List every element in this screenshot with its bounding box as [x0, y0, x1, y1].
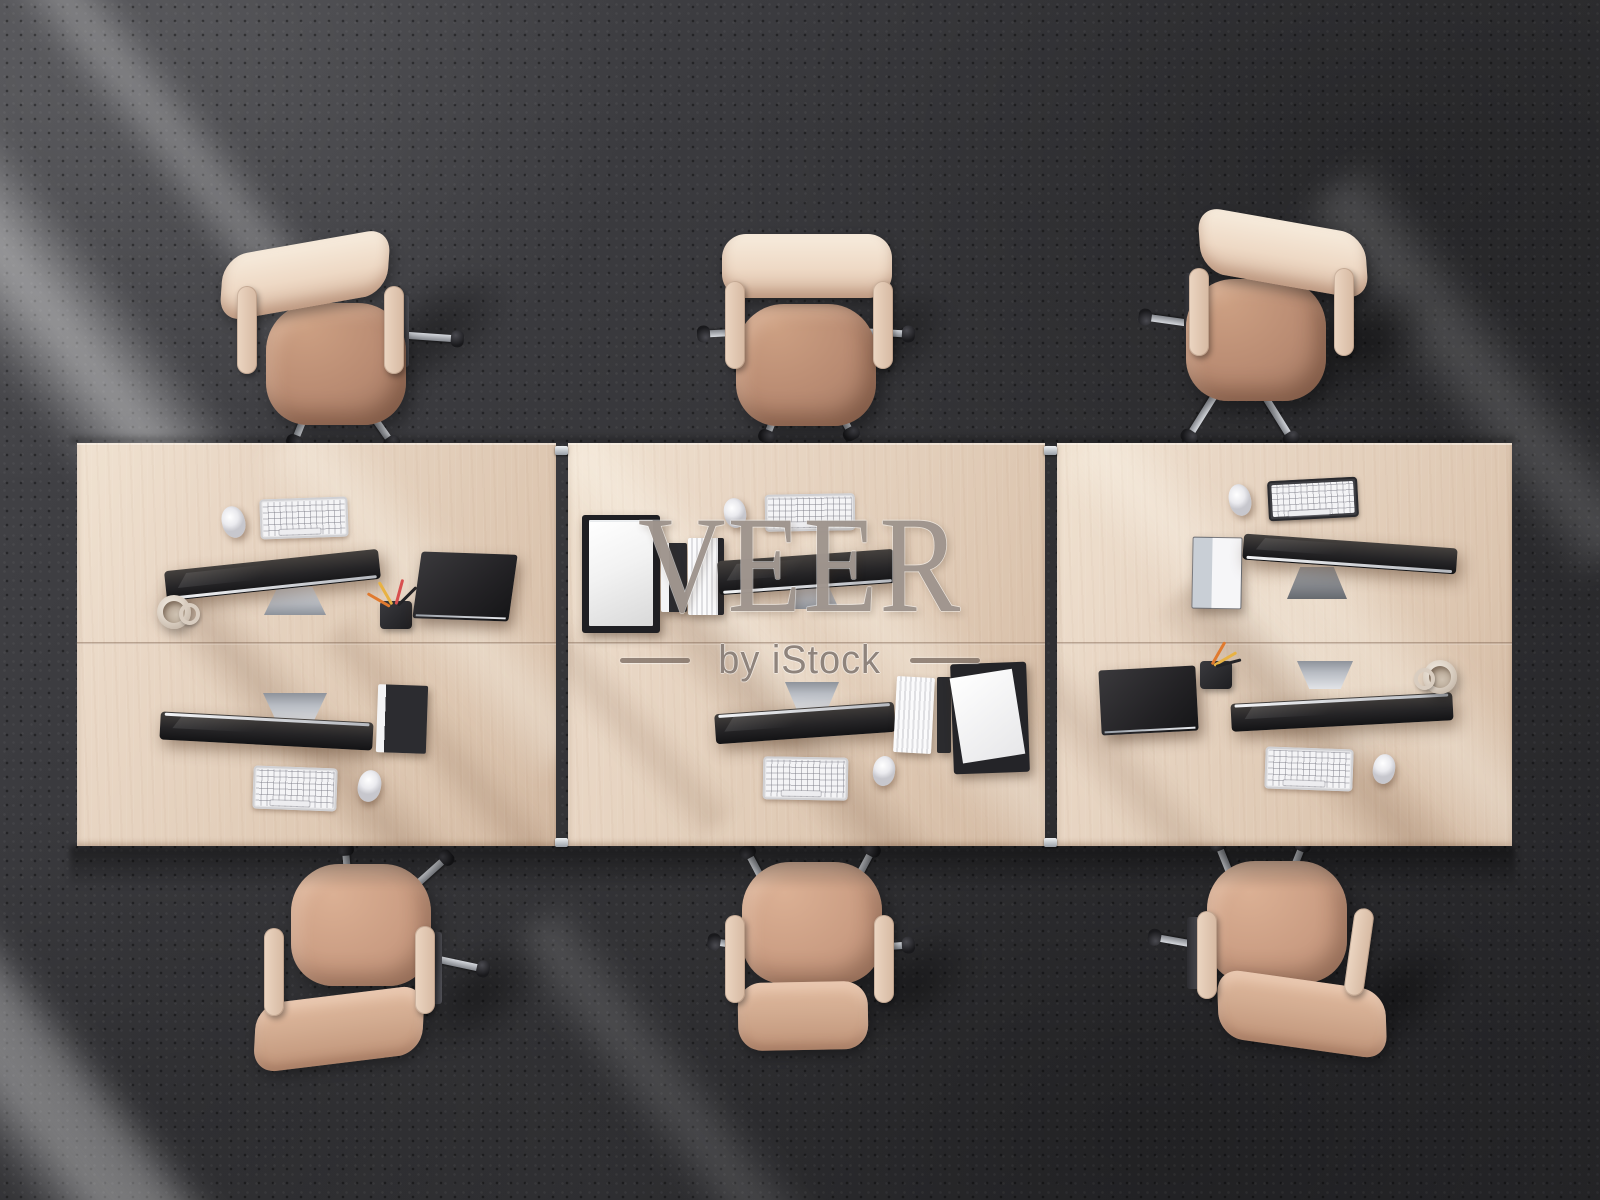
paper-stack: [589, 522, 653, 626]
chair-armrest: [725, 915, 745, 1003]
storage-box: [1191, 537, 1242, 610]
keyboard: [252, 766, 337, 812]
standing-book-dark: [661, 543, 687, 612]
paper-stack: [950, 669, 1026, 764]
desk-connector-clip: [1044, 446, 1057, 455]
pencil-holder: [380, 601, 412, 629]
closed-laptop: [412, 551, 517, 621]
keyboard: [763, 756, 849, 800]
chair-armrest: [873, 281, 893, 369]
document-organizer: [582, 515, 660, 633]
monitor-top: [164, 549, 381, 601]
paper-tray: [950, 662, 1030, 775]
standing-book: [376, 684, 428, 754]
keyboard: [1264, 746, 1353, 791]
computer-mouse: [722, 496, 749, 529]
desk-connector-clip: [555, 838, 568, 847]
desk-seam: [77, 642, 556, 645]
monitor-stand: [264, 587, 326, 615]
coffee-mug: [157, 595, 191, 629]
chair-armrest: [1343, 907, 1375, 997]
desk-right: [1057, 443, 1512, 846]
desk-connector-clip: [1044, 838, 1057, 847]
keyboard: [259, 496, 348, 539]
office-top-view-photo: VEER by iStock: [0, 0, 1600, 1200]
keyboard: [1267, 477, 1359, 522]
chair-armrest: [264, 928, 284, 1016]
desk-shadow: [70, 434, 1515, 443]
chair-armrest: [1334, 268, 1354, 356]
chair-armrest: [1197, 911, 1217, 999]
desk-left: [77, 443, 556, 846]
desk-center: [568, 443, 1045, 846]
desk-shadow: [70, 846, 1515, 888]
chair-backrest: [737, 981, 868, 1051]
chair-armrest: [415, 926, 435, 1014]
chair-armrest: [1189, 268, 1209, 356]
desk-seam: [568, 642, 1045, 645]
standing-book-white: [893, 676, 935, 754]
chair-armrest: [725, 281, 745, 369]
keyboard: [765, 493, 856, 532]
chair-backrest: [722, 234, 892, 298]
standing-book-dark: [937, 677, 951, 753]
pencil-holder: [1200, 661, 1232, 689]
chair-seat: [736, 304, 876, 426]
closed-laptop: [1098, 666, 1198, 736]
coffee-mug: [1423, 660, 1457, 694]
chair-armrest: [237, 286, 257, 374]
computer-mouse: [871, 755, 897, 788]
desk-seam: [1057, 642, 1512, 645]
computer-mouse: [218, 504, 248, 541]
chair-armrest: [874, 915, 894, 1003]
desk-connector-clip: [555, 446, 568, 455]
chair-armrest: [384, 286, 404, 374]
